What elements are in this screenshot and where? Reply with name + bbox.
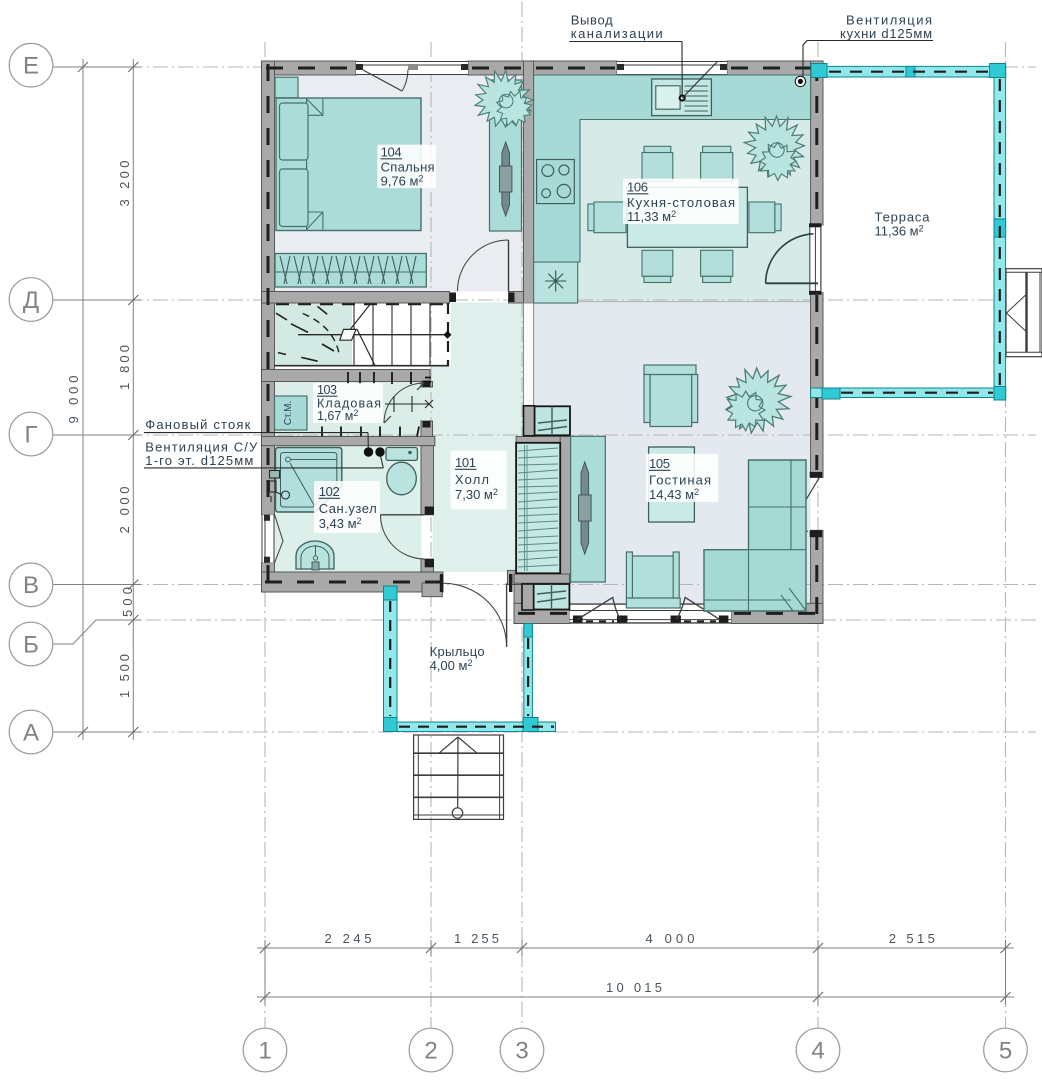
svg-text:2: 2 (424, 1038, 437, 1065)
svg-text:9,76 м2: 9,76 м2 (381, 174, 424, 189)
svg-text:3,43 м2: 3,43 м2 (319, 516, 362, 531)
svg-text:канализации: канализации (571, 26, 663, 41)
svg-text:Крыльцо: Крыльцо (430, 644, 485, 659)
svg-text:103: 103 (317, 383, 337, 397)
svg-text:Сан.узел: Сан.узел (319, 501, 377, 516)
svg-text:1: 1 (258, 1038, 271, 1065)
svg-text:Спальня: Спальня (381, 160, 435, 175)
svg-text:1-го эт. d125мм: 1-го эт. d125мм (145, 453, 253, 468)
svg-text:1,67 м2: 1,67 м2 (317, 408, 358, 423)
svg-text:500: 500 (120, 587, 135, 617)
svg-text:105: 105 (649, 456, 670, 471)
svg-text:2 000: 2 000 (117, 487, 132, 534)
svg-text:Ст.М.: Ст.М. (283, 401, 294, 426)
svg-text:4,00 м2: 4,00 м2 (430, 658, 473, 673)
svg-text:5: 5 (999, 1038, 1012, 1065)
svg-text:Б: Б (23, 632, 39, 659)
svg-text:Холл: Холл (455, 472, 489, 487)
svg-text:11,36 м2: 11,36 м2 (875, 224, 924, 239)
svg-text:Д: Д (23, 287, 39, 314)
svg-text:В: В (23, 572, 39, 599)
svg-text:7,30 м2: 7,30 м2 (455, 487, 498, 502)
svg-text:102: 102 (319, 484, 340, 499)
svg-text:Фановый стояк: Фановый стояк (145, 417, 250, 432)
svg-text:3: 3 (515, 1038, 528, 1065)
svg-text:кухни d125мм: кухни d125мм (840, 26, 932, 41)
svg-text:Гостиная: Гостиная (649, 473, 711, 488)
svg-text:Е: Е (23, 53, 39, 80)
svg-text:2 245: 2 245 (325, 931, 372, 946)
svg-text:Г: Г (25, 422, 38, 449)
svg-text:104: 104 (381, 145, 402, 160)
svg-text:9 000: 9 000 (66, 376, 81, 424)
svg-text:3 200: 3 200 (117, 161, 132, 207)
svg-text:Кухня-столовая: Кухня-столовая (627, 195, 735, 210)
svg-text:А: А (23, 720, 39, 747)
svg-text:14,43 м2: 14,43 м2 (649, 487, 699, 502)
svg-text:106: 106 (627, 180, 648, 195)
svg-text:2 515: 2 515 (889, 931, 935, 946)
svg-text:Терраса: Терраса (875, 210, 931, 225)
svg-text:101: 101 (455, 455, 476, 470)
svg-text:1 255: 1 255 (454, 931, 499, 946)
svg-text:1 500: 1 500 (117, 654, 132, 698)
svg-text:4: 4 (811, 1038, 824, 1065)
svg-text:11,33 м2: 11,33 м2 (627, 209, 676, 224)
svg-text:1 800: 1 800 (117, 345, 132, 390)
